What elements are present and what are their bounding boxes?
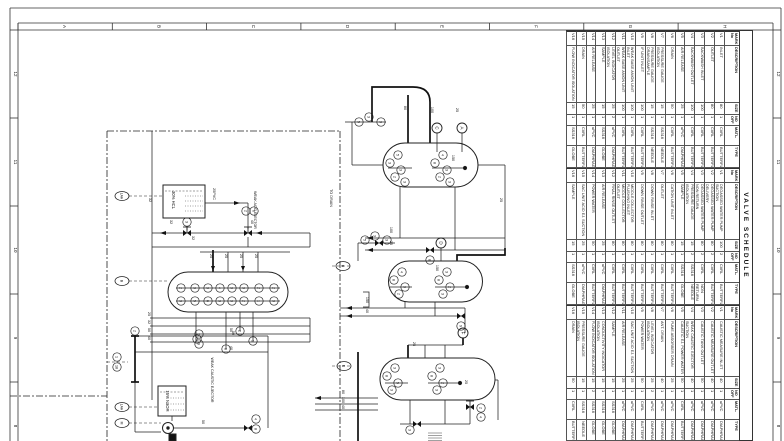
schedule-cell: 1 <box>694 389 704 400</box>
valve-tag-number: 5 <box>396 382 400 384</box>
schedule-cell: CI/RL <box>714 126 724 146</box>
note-block <box>428 433 442 441</box>
schedule-cell: SAMPLE <box>675 183 685 240</box>
schedule-cell: BUTTERFLY <box>635 146 645 168</box>
schedule-cell: V3 <box>694 168 704 183</box>
valve-tag-number: 8 <box>430 375 434 377</box>
schedule-cell: 80 <box>625 240 635 252</box>
connector-letter: D <box>438 241 443 245</box>
schedule-cell: 40 <box>704 377 714 389</box>
schedule-cell: V8 <box>645 168 655 183</box>
grid-ref-label: 8 <box>776 425 781 428</box>
valve-tag-number: 2 <box>272 287 276 289</box>
pipe-size-label: 50 <box>147 328 151 332</box>
schedule-cell: SS316 <box>595 400 605 420</box>
schedule-cell: V1 <box>714 305 724 320</box>
schedule-cell: 1 <box>605 252 615 263</box>
schedule-cell: V11 <box>615 168 625 183</box>
schedule-cell: DEGASSED WATER PUMP SUCTION <box>714 183 724 240</box>
schedule-cell: uPVC <box>655 400 665 420</box>
pipe-size-label: 50 <box>201 420 205 424</box>
schedule-cell: NEEDLE <box>655 146 665 168</box>
schedule-cell: BUTTERFLY <box>625 283 635 305</box>
schedule-cell: 40 <box>655 377 665 389</box>
schedule-cell: TYPE <box>724 283 739 305</box>
schedule-cell: 1 <box>625 389 635 400</box>
schedule-cell: V14 <box>586 168 596 183</box>
schedule-cell: GLOBE <box>675 283 685 305</box>
pipe-size-label: 80 <box>341 390 345 394</box>
valve-tag-number: 5 <box>396 154 400 156</box>
schedule-cell: 1 <box>615 115 625 126</box>
valve-tag-number: 4 <box>218 287 222 289</box>
schedule-cell: 2 <box>704 252 714 263</box>
battery-limit-line <box>10 131 340 441</box>
instrument-ovals: LAHBBELAHM <box>115 192 351 428</box>
schedule-cell: FUME ABSORBER DRAIN <box>665 320 675 377</box>
valve-tag-number: 5 <box>357 121 361 123</box>
grid-ref-label: 10 <box>776 247 781 253</box>
instrument-oval-label: M <box>120 422 124 425</box>
valve-tag-number: 3 <box>206 287 210 289</box>
schedule-cell: CAUSTIC EJ. POWER WATER <box>675 320 685 377</box>
instrument-links <box>107 196 352 423</box>
pipe-size-label: 150 <box>451 155 455 161</box>
schedule-cell: uPVC <box>684 400 694 420</box>
grid-ref-label: 10 <box>13 247 18 253</box>
schedule-cell: 1 <box>615 389 625 400</box>
schedule-cell: MIDDLE COLLECTOR FLUSHING INLET <box>625 183 635 240</box>
schedule-cell: 15 <box>675 240 685 252</box>
schedule-cell: uPVC <box>625 400 635 420</box>
schedule-cell: CI/RL <box>694 263 704 283</box>
schedule-cell: 1 <box>655 389 665 400</box>
valve-tag-number: 1 <box>257 300 261 302</box>
schedule-cell: SAC UNIT ACID EJ. SUCTION <box>576 183 586 240</box>
valve-tag-number: 2 <box>244 210 248 212</box>
valve-tag-number: 3 <box>445 271 449 273</box>
valve-tag-number: 3 <box>230 287 234 289</box>
instrument-oval-label: B <box>341 265 345 268</box>
valve-tag-number: 3 <box>403 181 407 183</box>
schedule-cell: 15 <box>684 240 694 252</box>
schedule-cell: 50 <box>675 377 685 389</box>
schedule-cell: 1 <box>714 115 724 126</box>
schedule-cell: SAMPLE <box>605 320 615 377</box>
schedule-cell: 15 <box>605 377 615 389</box>
schedule-cell: NEEDLE <box>576 420 586 441</box>
valve-tag-number: 2 <box>257 287 261 289</box>
drain-sump <box>169 434 176 441</box>
schedule-cell: 15 <box>566 103 576 115</box>
valve-tag-number: 9 <box>459 325 463 327</box>
schedule-cell: BUTTERFLY <box>605 283 615 305</box>
schedule-cell: CI/RL <box>615 263 625 283</box>
schedule-cell: CI/RL <box>684 126 694 146</box>
schedule-cell: WEAK CAUSTIC EJECTOR SUCTION <box>684 320 694 377</box>
valve-tag-number: 4 <box>254 418 258 420</box>
schedule-cell: DIAPHRAGM <box>684 420 694 441</box>
schedule-cell: 1 <box>675 252 685 263</box>
schedule-cell: V10 <box>625 305 635 320</box>
schedule-cell: V4 <box>684 31 694 46</box>
schedule-cell: OUTLET <box>704 46 714 103</box>
schedule-cell: DESCRIPTION <box>724 320 739 377</box>
schedule-cell: 1 <box>665 115 675 126</box>
grid-ref-label: C <box>251 25 256 29</box>
schedule-cell: uPVC <box>595 263 605 283</box>
valve-tag-number: 5 <box>363 239 367 241</box>
schedule-cell: 1 <box>655 252 665 263</box>
schedule-cell: BUTTERFLY <box>714 283 724 305</box>
schedule-cell: 100 <box>615 103 625 115</box>
schedule-cell: CAUSTIC TANK OUTLET <box>694 320 704 377</box>
valve-tag-number: 2 <box>242 300 246 302</box>
valve-tag-number: 8 <box>437 279 441 281</box>
pipe-size-label: 50 <box>231 331 235 335</box>
schedule-cell: 100 <box>714 240 724 252</box>
schedule-cell: V10 <box>625 168 635 183</box>
schedule-cell: V4 <box>684 305 694 320</box>
valve-tag-number: 3 <box>272 300 276 302</box>
schedule-cell: 80 <box>655 240 665 252</box>
grid-ref-label: 11 <box>776 160 781 165</box>
schedule-cell: 15 <box>655 103 665 115</box>
valve-tag-number: 2 <box>441 382 445 384</box>
schedule-cell: CAUSTIC MEASURE INLET <box>714 320 724 377</box>
schedule-cell: BUTTERFLY <box>576 146 586 168</box>
schedule-cell: CI/RL <box>566 400 576 420</box>
schedule-cell: 1 <box>566 115 576 126</box>
pipe-size-label: 40 <box>250 220 254 224</box>
schedule-cell: FLOW INDICATOR ISOLATION <box>586 320 596 377</box>
valve-tag-number: 3 <box>242 287 246 289</box>
valve-tag-number: 8 <box>392 279 396 281</box>
schedule-cell: 1 <box>645 115 655 126</box>
pipe-size-label: 25 <box>389 241 393 245</box>
schedule-cell: 1 <box>645 252 655 263</box>
schedule-cell: V2 <box>704 305 714 320</box>
valve-tag-number: 4 <box>479 416 483 418</box>
pipe-size-label: 32 <box>148 198 152 202</box>
schedule-cell: 1 <box>714 389 724 400</box>
schedule-cell: uPVC <box>615 400 625 420</box>
caustic-ejector-label: WEAK CAUSTIC EJECTOR <box>210 357 214 402</box>
schedule-cell: V11 <box>615 31 625 46</box>
schedule-cell: V6 <box>665 31 675 46</box>
schedule-cell: BUTTERFLY <box>635 283 645 305</box>
schedule-cell: SIZE <box>724 240 739 252</box>
schedule-cell: DIAPHRAGM <box>655 420 665 441</box>
valve-tag-number: 2 <box>238 330 242 332</box>
grid-ref-label: 11 <box>13 160 18 165</box>
schedule-cell: SAC UNIT ACID EJ. SUCTION <box>625 320 635 377</box>
valve-tag-number: 3 <box>179 300 183 302</box>
schedule-cell: 80 <box>704 103 714 115</box>
schedule-cell: V4 <box>684 168 694 183</box>
schedule-cell: AIR RELEASE <box>586 46 596 103</box>
schedule-cell: SS316 <box>605 400 615 420</box>
schedule-cell: BUTTERFLY <box>615 146 625 168</box>
schedule-cell: 25 <box>645 377 655 389</box>
pipe-size-label: 100 <box>430 107 434 113</box>
schedule-cell: CI/RL <box>694 126 704 146</box>
valve-schedule-grid: MARK NoDESCRIPTIONSIZENO OFFMATL.TYPEMAR… <box>566 31 739 441</box>
schedule-cell: ANT. DRAIN <box>655 320 665 377</box>
valve-tag-number: 3 <box>367 116 371 118</box>
schedule-cell: CI/RL <box>615 126 625 146</box>
schedule-cell: CI/RL <box>635 263 645 283</box>
grid-ref-label: D <box>345 25 350 29</box>
schedule-cell: DIAPHRAGM <box>694 420 704 441</box>
schedule-cell: FINAL RINSE OUTLET <box>605 183 615 240</box>
schedule-cell: NEEDLE <box>684 283 694 305</box>
valve-tag-number: 8 <box>254 428 258 430</box>
grid-ref-label: 12 <box>13 71 18 77</box>
schedule-cell: 1 <box>625 115 635 126</box>
schedule-cell: V2 <box>704 168 714 183</box>
schedule-cell: BUTTERFLY <box>684 146 694 168</box>
schedule-cell: 1 <box>694 115 704 126</box>
schedule-cell: BUTTERFLY <box>675 420 685 441</box>
pipe-size-label: 25 <box>224 254 228 258</box>
schedule-cell: PRESSURE GAUGE DRAIN/SAMPLE <box>645 46 655 103</box>
schedule-cell: SS316 <box>566 263 576 283</box>
schedule-cell: 1 <box>665 389 675 400</box>
schedule-cell: WEAK BASE ANION UNIT OUTLET <box>615 46 625 103</box>
schedule-cell: 50 <box>635 377 645 389</box>
schedule-cell: 1 <box>635 115 645 126</box>
schedule-cell: 1 <box>586 252 596 263</box>
grid-ref-label: A <box>62 25 67 28</box>
schedule-cell: 25 <box>595 240 605 252</box>
schedule-cell: BUTTERFLY <box>704 283 714 305</box>
schedule-cell: PRESSURE GAUGE ISOLATION <box>655 46 665 103</box>
schedule-cell: BUTTERFLY <box>615 283 625 305</box>
schedule-cell: CI/RL <box>704 263 714 283</box>
schedule-cell: V15 <box>576 305 586 320</box>
schedule-cell: CI/RL <box>625 263 635 283</box>
schedule-cell: DOWN RINSE INLET <box>645 183 655 240</box>
valve-tag-number: 3 <box>385 239 389 241</box>
valve-tag-number: 3 <box>379 121 383 123</box>
schedule-cell: 1 <box>625 252 635 263</box>
schedule-cell: DIAPHRAGM <box>704 420 714 441</box>
schedule-cell: LEVEL INDICATOR ISOLATION <box>645 320 655 377</box>
schedule-cell: 1 <box>576 115 586 126</box>
schedule-cell: CAUSTIC MEASURE OUTLET <box>704 320 714 377</box>
instrument-oval-label: LAH <box>120 193 124 200</box>
valve-schedule-table: VALVE SCHEDULE MARK NoDESCRIPTIONSIZENO … <box>566 30 753 441</box>
grid-ref-label: E <box>439 25 444 28</box>
valve-tag-number: 3 <box>193 287 197 289</box>
schedule-cell: CI/RL <box>665 263 675 283</box>
schedule-cell: SS316 <box>566 126 576 146</box>
schedule-cell: BUTTERFLY <box>714 146 724 168</box>
schedule-cell: IF UNIT INLET <box>635 46 645 103</box>
schedule-cell: DIAPHRAGM <box>675 146 685 168</box>
schedule-cell: 15 <box>595 103 605 115</box>
schedule-cell: SIZE <box>724 377 739 389</box>
schedule-cell: CI/RL <box>605 263 615 283</box>
schedule-cell: DIAPHRAGM <box>615 420 625 441</box>
schedule-cell: NO OFF <box>724 252 739 263</box>
schedule-cell: V7 <box>655 168 665 183</box>
schedule-cell: SS316 <box>684 263 694 283</box>
schedule-cell: 100 <box>635 103 645 115</box>
pipe-size-label: 25 <box>412 342 416 346</box>
valve-tag-number: 2 <box>479 407 483 409</box>
schedule-cell: GLOBE <box>595 146 605 168</box>
pipe-size-label: 32 <box>169 220 173 224</box>
pipe-size-label: 25 <box>499 198 503 202</box>
grid-ref-label: G <box>628 25 633 29</box>
valve-tag-number: 2 <box>397 293 401 295</box>
valve-tag-number: 8 <box>433 162 437 164</box>
schedule-cell: LEVEL INDICATOR ISOLATION <box>605 46 615 103</box>
schedule-cell: PRESSURE GAUGE ISOLATION <box>576 320 586 377</box>
schedule-cell: SS316 <box>586 400 596 420</box>
main-process-lines <box>131 87 505 441</box>
schedule-cell: V15 <box>576 31 586 46</box>
schedule-cell: V13 <box>595 31 605 46</box>
schedule-cell: MIDDLE COLLECTOR OUTLET <box>615 183 625 240</box>
pipe-size-label: 40 <box>229 346 233 350</box>
pipe-size-label: 25 <box>254 254 258 258</box>
schedule-cell: V15 <box>576 168 586 183</box>
schedule-cell: CI/RL <box>675 400 685 420</box>
schedule-cell: BUTTERFLY <box>566 420 576 441</box>
schedule-cell: SS316 <box>655 126 665 146</box>
schedule-cell: AIR RELEASE <box>675 46 685 103</box>
valve-tag-number: 8 <box>385 375 389 377</box>
schedule-cell: 1 <box>635 389 645 400</box>
schedule-cell: uPVC <box>675 126 685 146</box>
schedule-cell: 15 <box>566 240 576 252</box>
schedule-cell: BUTTERFLY <box>655 283 665 305</box>
schedule-cell: 1 <box>595 252 605 263</box>
pipe-size-label: 150 <box>435 265 439 271</box>
schedule-cell: CI/RL <box>635 400 645 420</box>
valve-tag-number: 3 <box>373 235 377 237</box>
schedule-cell: SAMPLE <box>566 183 576 240</box>
schedule-cell: 80 <box>714 103 724 115</box>
schedule-cell: MARK No <box>724 31 739 46</box>
schedule-cell: CATION UNIT INLET <box>665 183 675 240</box>
schedule-cell: 1 <box>675 389 685 400</box>
valve-tag-number: 6 <box>252 210 256 212</box>
pipe-size-label: 25 <box>209 254 213 258</box>
sac-vessel <box>168 272 288 312</box>
schedule-cell: GLOBE <box>605 420 615 441</box>
schedule-cell: DIAPHRAGM <box>586 146 596 168</box>
schedule-cell: BUTTERFLY <box>694 146 704 168</box>
schedule-cell: TYPE <box>724 420 739 441</box>
schedule-cell: 50 <box>586 240 596 252</box>
schedule-cell: 2 <box>586 389 596 400</box>
schedule-cell: 2 <box>645 389 655 400</box>
schedule-cell: 80 <box>665 240 675 252</box>
schedule-cell: 1 <box>684 389 694 400</box>
valve-tag-number: 3 <box>399 169 403 171</box>
schedule-cell: DRAIN <box>566 320 576 377</box>
schedule-cell: SS316 <box>595 126 605 146</box>
pipe-size-label: 100 <box>389 227 393 233</box>
schedule-cell: V9 <box>635 305 645 320</box>
schedule-cell: 100 <box>694 103 704 115</box>
schedule-cell: 2 <box>714 252 724 263</box>
pipe-size-label: 40 <box>147 336 151 340</box>
schedule-cell: CI/RL <box>714 263 724 283</box>
schedule-cell: CI/RL <box>655 263 665 283</box>
schedule-cell: 100 <box>625 103 635 115</box>
schedule-cell: V5 <box>675 305 685 320</box>
schedule-cell: AIR RELEASE <box>615 320 625 377</box>
pipe-size-label: 32 <box>191 236 195 240</box>
schedule-cell: SS316 <box>675 263 685 283</box>
schedule-cell: 1 <box>595 389 605 400</box>
schedule-cell: CI/RL <box>635 126 645 146</box>
schedule-cell: 50 <box>665 103 675 115</box>
grid-ref-label: 12 <box>776 71 781 77</box>
valve-tag-number: 2 <box>393 176 397 178</box>
valve-tag-number: 4 <box>400 271 404 273</box>
schedule-cell: NO OFF <box>724 115 739 126</box>
schedule-cell: 50 <box>566 377 576 389</box>
schedule-cell: DRAIN <box>665 46 675 103</box>
valve-tag-number: 4 <box>441 154 445 156</box>
schedule-cell: SS316 <box>576 400 586 420</box>
line-connectors: CADF <box>432 123 468 338</box>
schedule-cell: DOWN RINSE OUTLET <box>635 183 645 240</box>
valve-tag-number: 3 <box>388 162 392 164</box>
valve-tag-number: 5 <box>193 300 197 302</box>
schedule-cell: BUTTERFLY <box>645 283 655 305</box>
schedule-cell: V6 <box>665 168 675 183</box>
schedule-cell: DRAIN <box>576 46 586 103</box>
schedule-cell: V12 <box>605 305 615 320</box>
schedule-cell: GLOBE <box>586 420 596 441</box>
schedule-cell: V3 <box>694 305 704 320</box>
pipe-size-label: 25 <box>239 254 243 258</box>
schedule-cell: DIAPHRAGM <box>645 420 655 441</box>
schedule-cell: 80 <box>645 240 655 252</box>
schedule-cell: 1 <box>586 115 596 126</box>
valve-tag-number: 18 <box>115 365 119 369</box>
schedule-cell: V16 <box>566 168 576 183</box>
schedule-cell: GLOBE <box>566 146 576 168</box>
schedule-cell: V5 <box>675 168 685 183</box>
schedule-cell: 1 <box>605 389 615 400</box>
schedule-cell: V3 <box>694 31 704 46</box>
to-drain-label: TO DRAIN <box>329 189 333 207</box>
grid-ref-label: 8 <box>13 425 18 428</box>
schedule-cell: TYPE <box>724 146 739 168</box>
schedule-cell: 1 <box>684 115 694 126</box>
schedule-cell: V12 <box>605 168 615 183</box>
schedule-cell: MARK No <box>724 305 739 320</box>
schedule-cell: DEGASSED WATER PUMP DELIVERY <box>704 183 714 240</box>
schedule-cell: BACKWASH INLET <box>694 46 704 103</box>
valve-tag-number: 2 <box>133 330 137 332</box>
schedule-cell: V1 <box>714 168 724 183</box>
schedule-cell: SS316 <box>645 126 655 146</box>
schedule-cell: BUTTERFLY <box>635 420 645 441</box>
grid-ref-label: B <box>157 25 162 28</box>
schedule-cell: V13 <box>595 168 605 183</box>
schedule-cell: PRESSURE GAUGE ISOLATION <box>684 183 694 240</box>
schedule-cell: 25 <box>586 103 596 115</box>
